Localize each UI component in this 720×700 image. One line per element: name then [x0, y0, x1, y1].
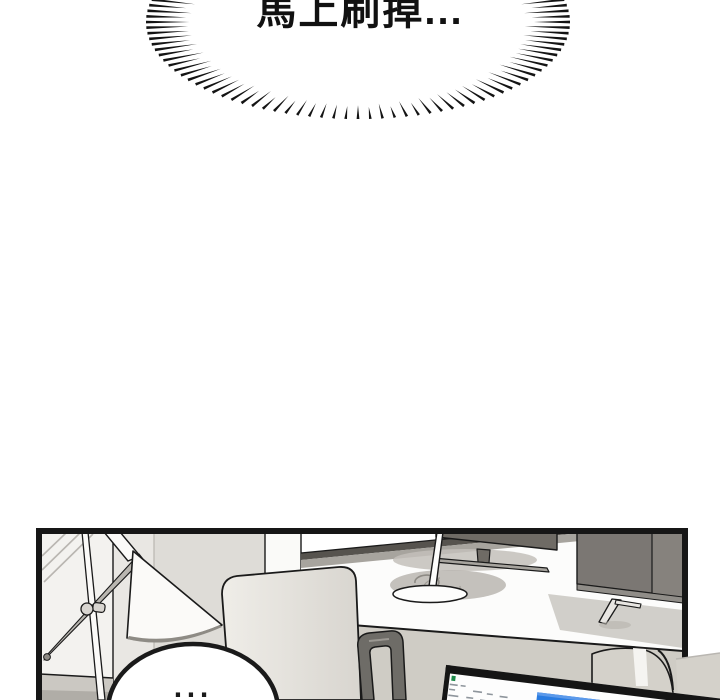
burst-spike [221, 84, 245, 98]
burst-spike [188, 69, 221, 82]
laptop-lid-overflow [676, 653, 720, 700]
app-icon-green [451, 676, 456, 681]
office-panel: ... [40, 526, 684, 700]
burst-spike [146, 26, 188, 29]
burst-spike [284, 101, 295, 114]
burst-spike [357, 105, 360, 119]
burst-spike [369, 107, 372, 119]
burst-spike [462, 86, 485, 101]
burst-spike [155, 44, 197, 51]
bubble-ellipsis: ... [173, 675, 212, 700]
side-table-base [393, 586, 467, 603]
burst-spike [273, 96, 289, 112]
burst-spike [531, 4, 567, 8]
monitor-stand-column [477, 549, 490, 563]
burst-spike [231, 86, 255, 101]
burst-spike [262, 97, 276, 110]
burst-spike [518, 49, 557, 57]
burst-spike [525, 26, 570, 29]
burst-spike [390, 106, 396, 118]
burst-spike [203, 76, 232, 89]
burst-spike [296, 100, 307, 116]
burst-spike [146, 15, 186, 18]
burst-spike [500, 65, 536, 77]
burst-spike [344, 106, 347, 119]
burst-spike [152, 0, 196, 4]
burst-spike [476, 79, 504, 94]
burst-spike [212, 80, 239, 94]
burst-spike [308, 103, 316, 117]
burst-spike [332, 105, 337, 119]
burst-spike [149, 35, 192, 40]
burst-spike [430, 98, 444, 112]
burst-spike [399, 101, 408, 117]
burst-spike [152, 40, 191, 46]
burst-spike [418, 98, 431, 114]
burst-spike [524, 9, 569, 13]
burst-spike [411, 103, 420, 116]
burst-spike [531, 31, 569, 34]
burst-spike [320, 103, 327, 118]
comic-page: ... [0, 0, 720, 700]
burst-spike [525, 40, 564, 46]
burst-spike [379, 104, 384, 119]
lamp-arm-tip [44, 654, 51, 661]
burst-spike [532, 15, 570, 18]
burst-spike [149, 4, 186, 8]
burst-spike [147, 9, 191, 13]
burst-spike [534, 21, 570, 24]
speech-burst [146, 0, 570, 119]
burst-spike [521, 0, 564, 4]
burst-spike [147, 31, 189, 35]
burst-spike [146, 21, 190, 24]
burst-spike [488, 72, 521, 86]
burst-spike [523, 35, 567, 40]
